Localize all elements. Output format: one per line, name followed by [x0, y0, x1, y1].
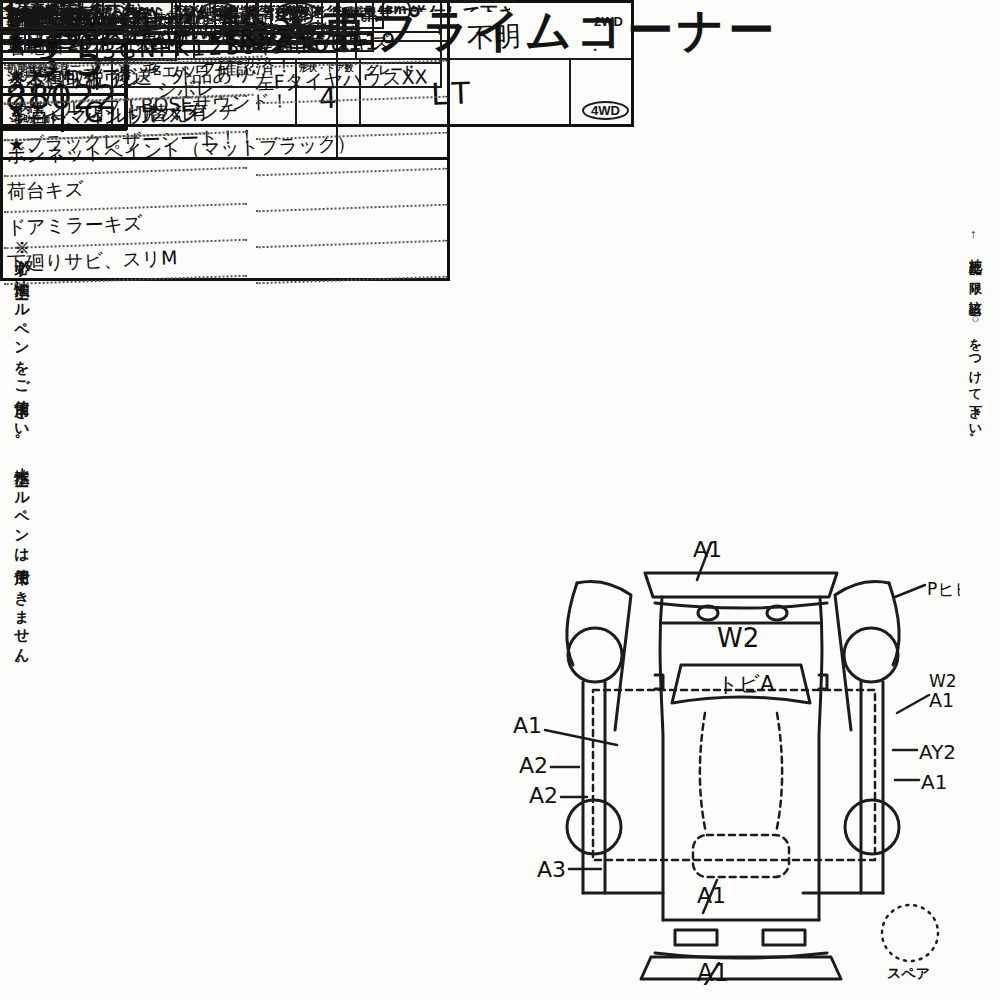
report-right — [254, 244, 447, 285]
drive-cell: 2WD ・ 4WD — [571, 60, 631, 126]
damage-label-left3: A2 — [529, 783, 558, 808]
damage-label-front: A1 — [693, 537, 722, 562]
report-right: 左FタイヤハウスXX — [254, 64, 447, 105]
damage-label-windshield: トビA — [717, 672, 775, 696]
damage-label-left2: A2 — [519, 753, 548, 778]
damage-label-bottom: A1 — [697, 959, 729, 985]
auction-sheet: 輸入車プライムコーナー No. 88022 車歴（自家用以外は記入） 排気量 5… — [0, 0, 1000, 1000]
spare-tire-label: スペア — [887, 965, 930, 981]
damage-label-right-w2: W2 — [929, 671, 957, 691]
damage-label-rear: A1 — [697, 883, 726, 908]
bed-unit: cm — [361, 11, 378, 25]
clipped-bottom-note-text: ※キーレス・リモコン類は、名義変更完了後、一緒に送付して下さい。 — [0, 2, 510, 12]
drive-2wd: 2WD — [594, 14, 623, 29]
report-left: ボンネットペイント（マットブラック） — [2, 135, 247, 177]
report-right — [254, 136, 447, 177]
report-left: ダッシュ板ワレ — [2, 63, 247, 105]
damage-label-p-crack: Pヒビ — [927, 579, 960, 599]
report-right: キズ、ウスキズ — [254, 28, 447, 69]
damage-label-right-ay2: AY2 — [919, 740, 956, 764]
report-left: シート、ハンドルスレ — [2, 99, 247, 141]
inspector-report-box: ◎検査員報告 （USS使用欄） 右電格ミラー不良キズ、ウスキズ ダッシュ板ワレ左… — [0, 0, 450, 281]
model-code-value: 不明 — [466, 18, 521, 56]
clipped-bottom-note: ※キーレス・リモコン類は、名義変更完了後、一緒に送付して下さい。 — [0, 0, 510, 12]
report-right — [254, 208, 447, 249]
report-left: 荷台キズ — [2, 171, 247, 213]
damage-label-right-a1b: A1 — [921, 770, 947, 794]
damage-label-left4: A3 — [537, 857, 566, 882]
report-left: 下廻りサビ、スリM — [2, 243, 247, 285]
damage-label-hood: W2 — [717, 623, 759, 653]
bed-unit: cm — [233, 11, 250, 25]
report-left: 右電格ミラー不良 — [2, 27, 247, 69]
report-left: ドアミラーキズ — [2, 207, 247, 249]
damage-label-right-a1: A1 — [929, 689, 954, 711]
left-margin-note: ※必ず油性ボールペンをご使用下さい。 水性ボールペンは使用できません。 — [12, 230, 31, 775]
report-right — [254, 172, 447, 213]
right-margin-note: ← 純正品に限り該当に○をつけて下さい。 — [966, 228, 984, 628]
drive-separator: ・ — [589, 42, 601, 59]
damage-label-left1: A1 — [513, 713, 542, 738]
drive-4wd-circled: 4WD — [582, 101, 629, 120]
damage-diagram: A1 Pヒビ W2 トビA A1 A2 A2 A3 W2 A1 AY2 A1 A… — [505, 535, 960, 985]
